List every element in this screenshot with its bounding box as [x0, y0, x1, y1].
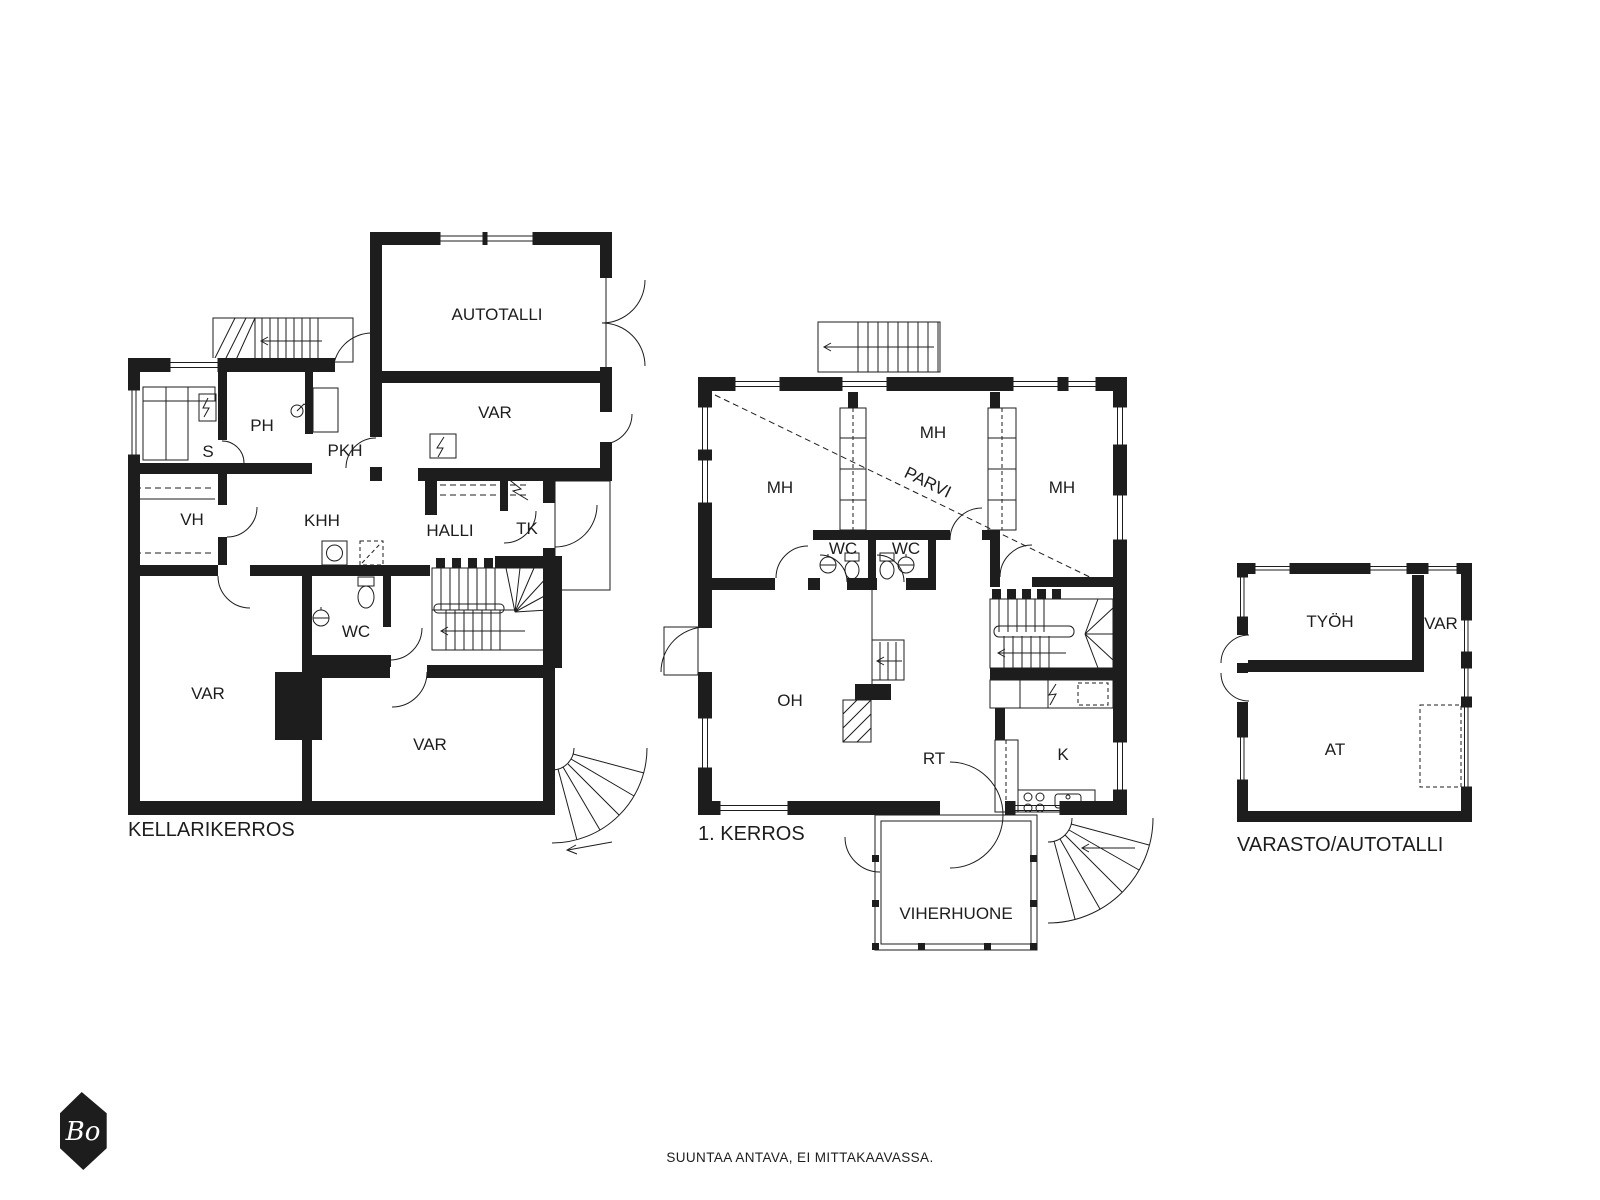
disclaimer-text: SUUNTAA ANTAVA, EI MITTAKAAVASSA.	[666, 1150, 933, 1165]
floor-plans-svg: AUTOTALLI VAR PH S PKH VH KHH HALLI TK W…	[0, 0, 1600, 1200]
cabinet-icon	[313, 388, 338, 432]
room-label: VAR	[1424, 614, 1458, 633]
room-label: VAR	[413, 735, 447, 754]
room-label: K	[1057, 745, 1069, 764]
dashed-area	[1420, 705, 1461, 787]
room-label: HALLI	[426, 521, 473, 540]
room-label: MH	[920, 423, 946, 442]
interior-staircase	[990, 589, 1113, 668]
lightning-icon	[507, 478, 528, 500]
electric-panel-icon	[430, 434, 456, 458]
room-label: WC	[342, 622, 370, 641]
room-label: PARVI	[901, 463, 954, 502]
room-label: AUTOTALLI	[451, 305, 542, 324]
brand-logo: Bo	[60, 1092, 107, 1170]
room-label: PKH	[328, 441, 363, 460]
floor-title: KELLARIKERROS	[128, 819, 295, 841]
floor-plan-page: AUTOTALLI VAR PH S PKH VH KHH HALLI TK W…	[0, 0, 1600, 1200]
interior-staircase	[432, 558, 548, 650]
room-label: VAR	[478, 403, 512, 422]
plan-outbuilding: TYÖH VAR AT VARASTO/AUTOTALLI	[1221, 563, 1472, 856]
exterior-stairs-top-icon	[818, 322, 940, 372]
room-label: S	[202, 442, 213, 461]
plan-first-floor: MH MH MH PARVI WC WC OH RT K VIHERHUONE …	[661, 322, 1153, 950]
room-label: WC	[892, 539, 920, 558]
washing-machine-icon	[322, 541, 347, 565]
conservatory	[872, 815, 1037, 950]
toilet-icon	[358, 577, 374, 608]
floor-title: VARASTO/AUTOTALLI	[1237, 834, 1443, 856]
lightning-icon	[1049, 684, 1056, 705]
room-label: MH	[767, 478, 793, 497]
door-arcs	[661, 508, 1032, 872]
room-label: RT	[923, 749, 945, 768]
logo-text: Bo	[65, 1117, 101, 1147]
exterior-curved-stairs	[552, 748, 647, 854]
windows	[1237, 563, 1472, 787]
utility-closets	[990, 680, 1113, 708]
room-label: PH	[250, 416, 274, 435]
entry-porch	[555, 481, 610, 590]
exterior-stairs-top-icon	[213, 318, 353, 362]
room-label: VIHERHUONE	[899, 904, 1012, 923]
room-label: AT	[1325, 740, 1345, 759]
sink-icon	[313, 607, 329, 626]
room-label: TYÖH	[1306, 612, 1353, 631]
room-label: OH	[777, 691, 803, 710]
room-label: KHH	[304, 511, 340, 530]
sauna-stove-icon	[199, 394, 216, 421]
room-label: TK	[516, 519, 538, 538]
room-label: VH	[180, 510, 204, 529]
floor-title: 1. KERROS	[698, 823, 805, 845]
fireplace-icon	[843, 700, 871, 742]
room-label: WC	[829, 539, 857, 558]
room-divider-steps	[872, 590, 904, 684]
exterior-curved-stairs	[1048, 818, 1153, 923]
appliance-dashed-icon	[360, 541, 383, 565]
room-label: VAR	[191, 684, 225, 703]
plan-basement: AUTOTALLI VAR PH S PKH VH KHH HALLI TK W…	[128, 232, 647, 854]
room-label: MH	[1049, 478, 1075, 497]
walls	[1237, 563, 1472, 822]
